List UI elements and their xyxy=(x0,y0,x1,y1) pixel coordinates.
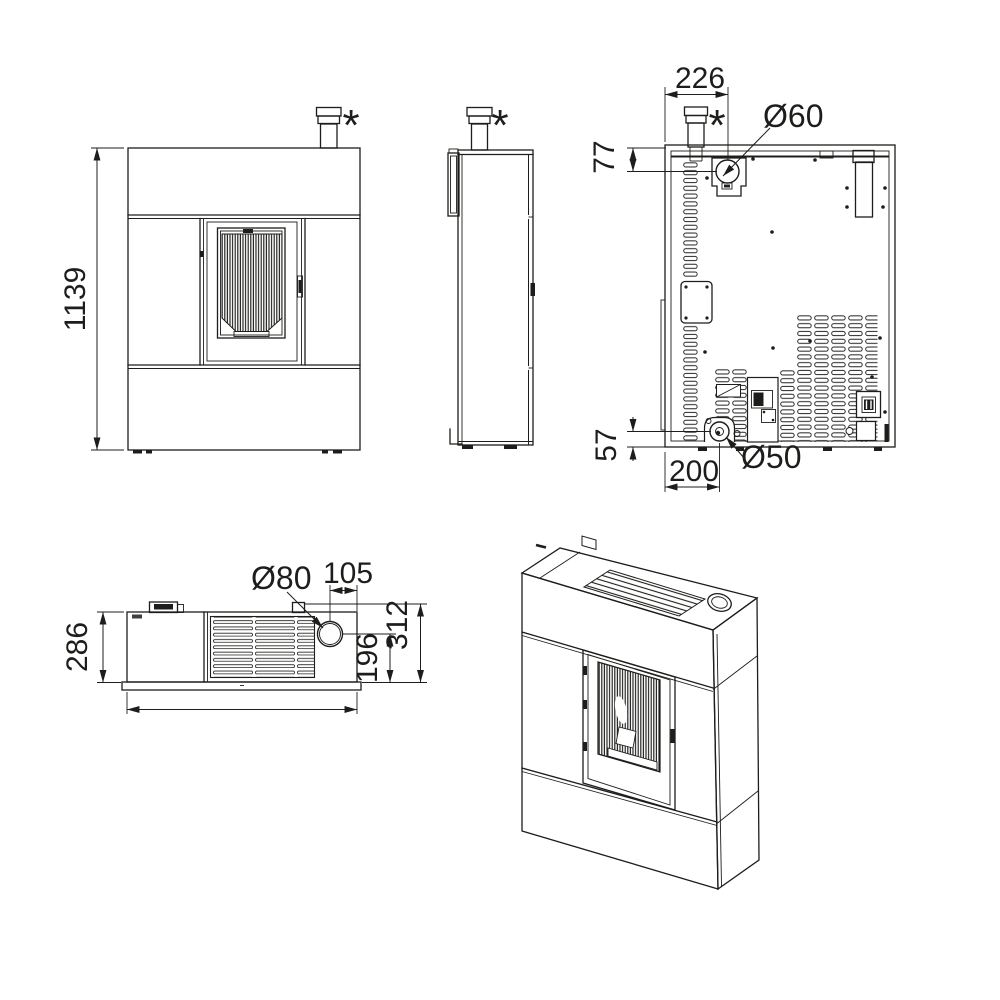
front-flue-asterisk: * xyxy=(342,101,359,150)
side-body-outline xyxy=(458,150,533,445)
rear-flue-asterisk: * xyxy=(708,101,725,150)
top-grille xyxy=(211,617,315,678)
side-foot xyxy=(504,445,517,449)
rear-foot xyxy=(874,447,882,451)
dim-rear-exhaust-height: 57 xyxy=(590,428,623,461)
rear-access-panel xyxy=(748,378,779,443)
side-view: * xyxy=(448,101,535,449)
dim-top-overall-depth: 312 xyxy=(381,600,414,650)
top-logo-mark xyxy=(132,615,142,619)
side-flue-pipe xyxy=(467,108,492,151)
top-flue-outlet xyxy=(318,622,343,647)
iso-right-face xyxy=(713,598,759,889)
front-foot xyxy=(333,450,342,454)
iso-hinge xyxy=(584,700,588,709)
rear-power-socket xyxy=(857,392,881,418)
iso-hinge xyxy=(584,742,588,751)
top-plinth xyxy=(122,682,361,690)
rear-air-intake xyxy=(712,158,746,196)
front-foot xyxy=(146,450,152,454)
top-view: 286 Ø80 105 196 312 xyxy=(61,557,427,714)
front-foot xyxy=(133,450,142,454)
dim-top-depth: 286 xyxy=(61,622,94,672)
dim-front-height: 1139 xyxy=(59,267,92,332)
iso-door-handle xyxy=(671,729,676,743)
rear-flue-pipe xyxy=(685,107,708,161)
front-flue-pipe xyxy=(317,108,342,149)
side-foot xyxy=(462,445,473,449)
rear-vent-slots-left-upper xyxy=(683,161,698,278)
rear-foot xyxy=(823,447,832,451)
iso-rear-flue-stub xyxy=(582,536,596,550)
front-window-glass xyxy=(222,234,282,332)
rear-junction-box xyxy=(857,422,876,441)
rear-view: * xyxy=(588,62,895,492)
rear-vent-slots-center xyxy=(780,369,796,442)
dim-top-flue-offset-front: 196 xyxy=(351,633,384,683)
dim-rear-intake-offset-y: 77 xyxy=(588,140,621,173)
side-door-handle xyxy=(531,283,536,296)
iso-flue-outlet xyxy=(706,591,734,614)
stove-drawing-svg: * 1139 * xyxy=(0,0,1000,1000)
dim-rear-exhaust-diameter: Ø50 xyxy=(741,439,801,475)
front-window-grate xyxy=(234,332,269,337)
dim-top-flue-offset-right: 105 xyxy=(323,557,373,590)
front-door-latch xyxy=(200,251,204,257)
front-view: * 1139 xyxy=(59,101,360,454)
side-flue-asterisk: * xyxy=(491,101,508,150)
dim-top-flue-diameter: Ø80 xyxy=(251,560,311,596)
dim-rear-flue-offset-x: 226 xyxy=(675,62,725,95)
iso-hinge xyxy=(584,666,588,675)
isometric-view xyxy=(522,536,759,889)
top-control-panel xyxy=(150,602,184,613)
technical-drawing-page: * 1139 * xyxy=(0,0,1000,1000)
front-foot xyxy=(322,450,328,454)
rear-vent-slots-left-lower xyxy=(683,325,698,442)
dim-rear-intake-diameter: Ø60 xyxy=(763,98,823,134)
rear-foot xyxy=(698,447,707,451)
dim-rear-exhaust-offset-x: 200 xyxy=(669,455,719,488)
